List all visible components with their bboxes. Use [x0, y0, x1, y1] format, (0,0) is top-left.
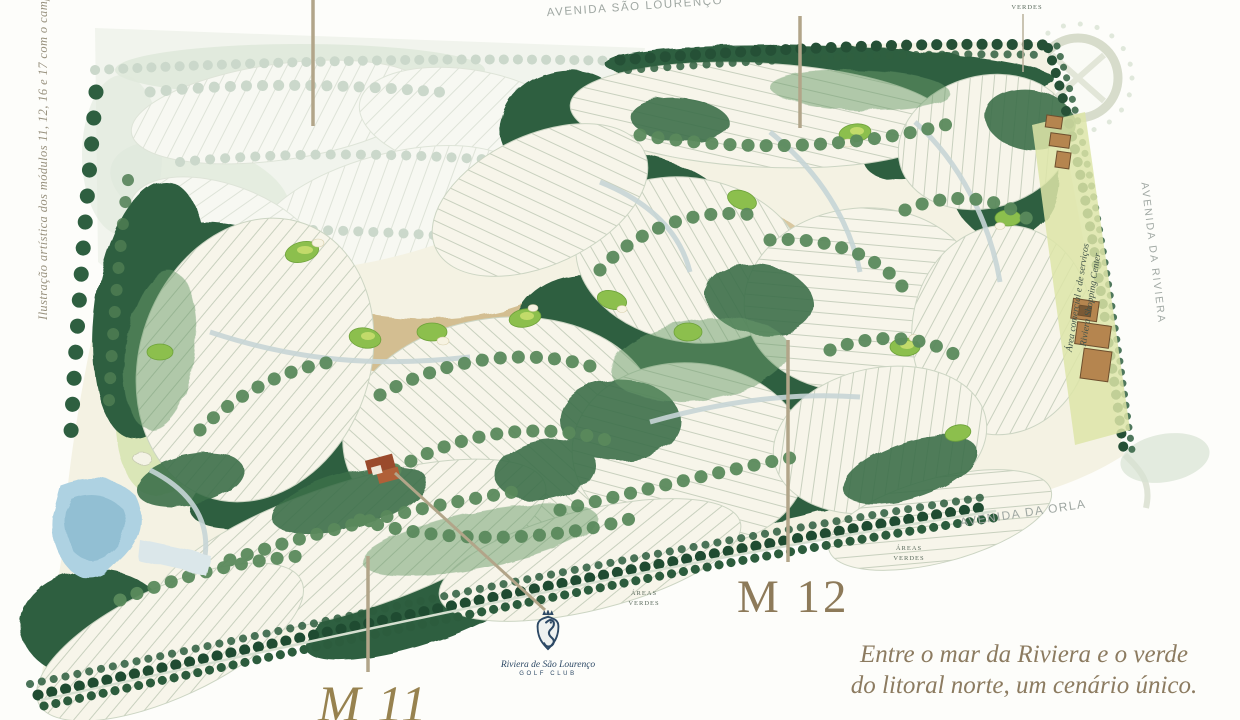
golf-club-subtitle: GOLF CLUB — [498, 671, 598, 677]
golf-club-logo: Riviera de São Lourenço GOLF CLUB — [498, 610, 598, 677]
marketing-tagline: Entre o mar da Riviera e o verde do lito… — [848, 640, 1200, 701]
masterplan-illustration — [0, 0, 1240, 720]
artistic-illustration-caption: Ilustração artística dos módulos 11, 12,… — [36, 0, 58, 320]
green-areas-label-top: ÁREAS VERDES — [998, 0, 1056, 13]
green-areas-label-mid: ÁREAS VERDES — [880, 544, 938, 564]
module-11-label: M 11 — [318, 676, 428, 720]
golf-club-name: Riviera de São Lourenço — [498, 660, 598, 670]
masterplan-page: Ilustração artística dos módulos 11, 12,… — [0, 0, 1240, 720]
module-12-label: M 12 — [737, 570, 850, 624]
seahorse-crest-icon — [530, 610, 566, 654]
green-areas-label-bottom: ÁREAS VERDES — [615, 589, 673, 609]
